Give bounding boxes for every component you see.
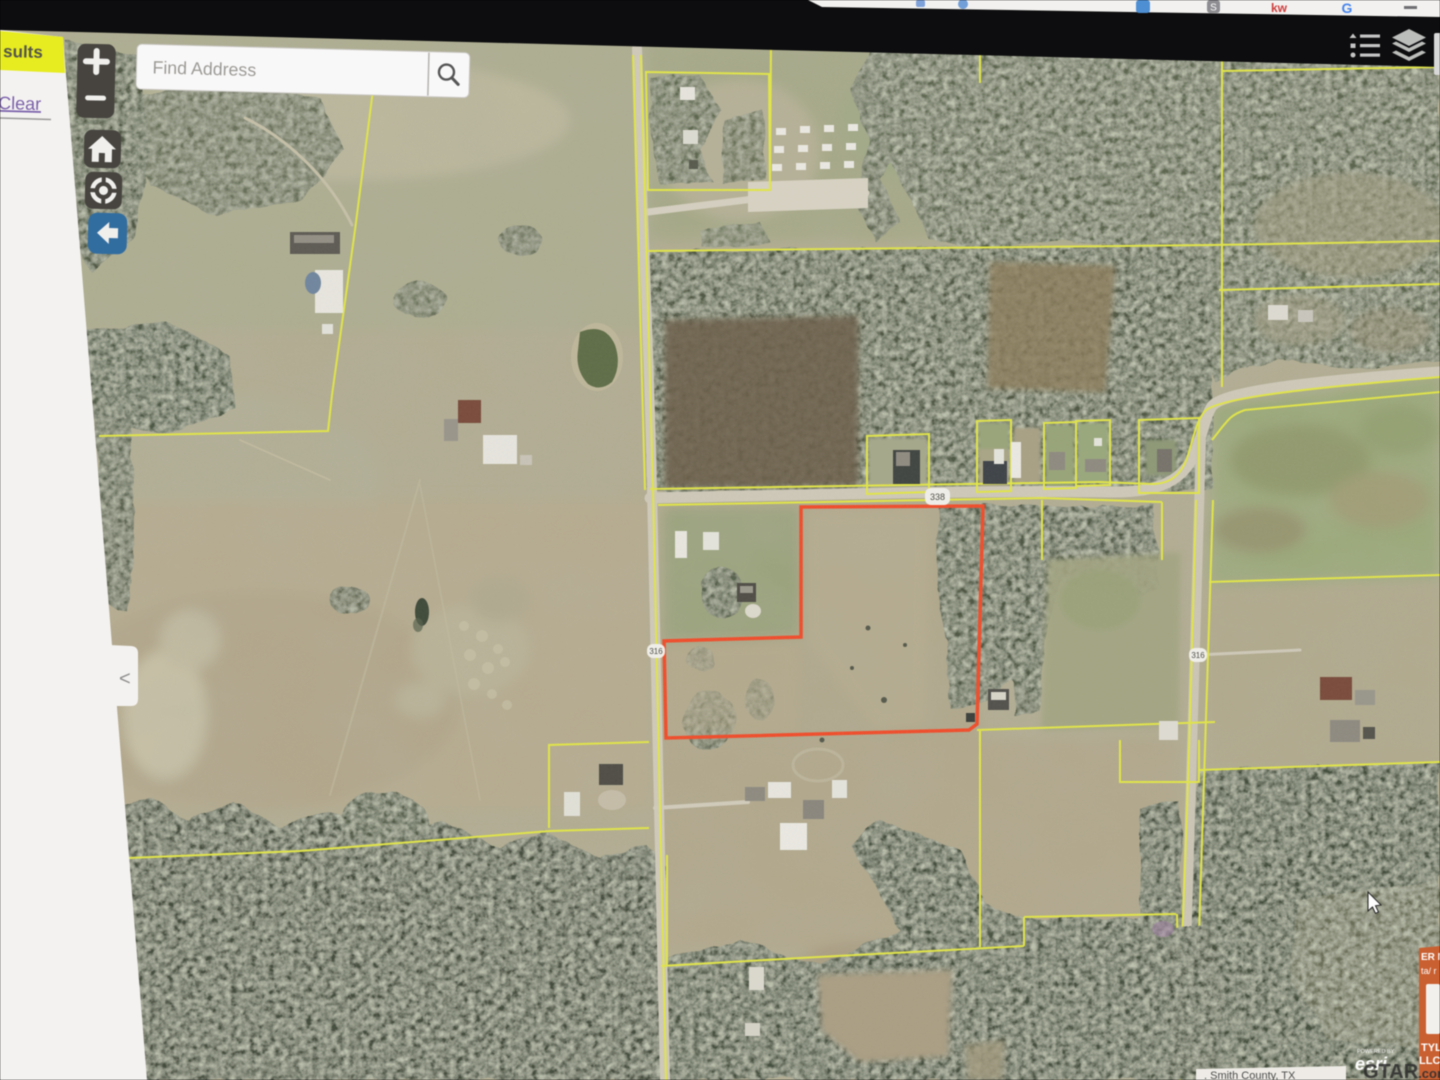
svg-text:Find Address: Find Address bbox=[152, 57, 256, 80]
svg-text:sults: sults bbox=[3, 42, 43, 62]
svg-text:G: G bbox=[1342, 0, 1353, 16]
svg-text:TYL: TYL bbox=[1421, 1042, 1440, 1054]
svg-text:kw: kw bbox=[1271, 1, 1288, 15]
svg-text:ta/ r: ta/ r bbox=[1421, 966, 1437, 976]
svg-text:Clear: Clear bbox=[0, 93, 41, 114]
svg-text:ER M: ER M bbox=[1421, 952, 1440, 963]
svg-text:S: S bbox=[1210, 3, 1217, 14]
svg-text:<: < bbox=[119, 668, 131, 690]
svg-text:. Smith County, TX: . Smith County, TX bbox=[1204, 1070, 1296, 1080]
